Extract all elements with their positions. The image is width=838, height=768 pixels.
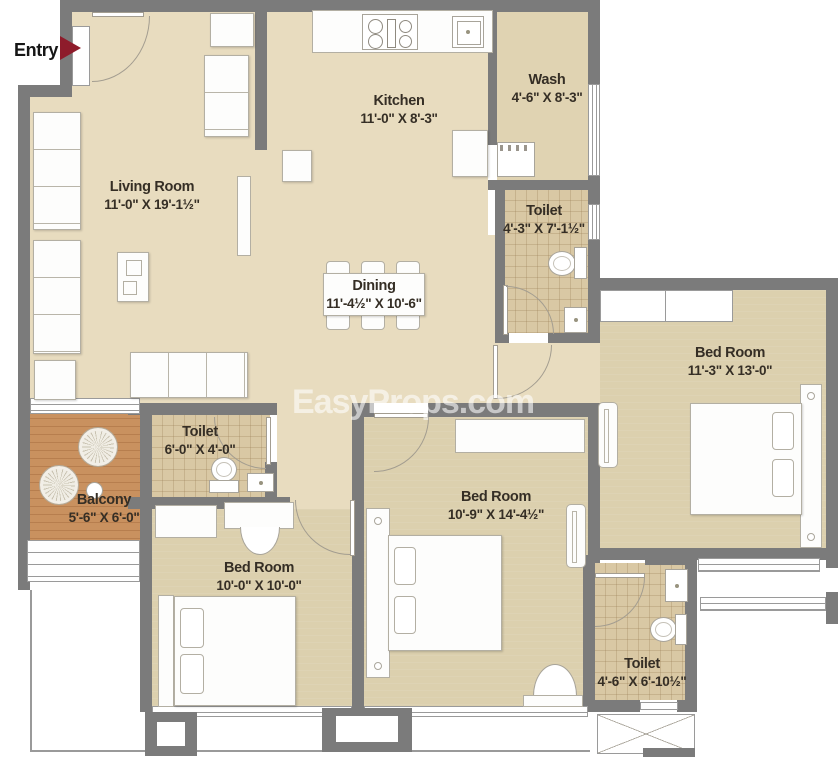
toilet-middle-door-leaf [266,417,271,465]
wall-bedroom-center-left [352,403,364,710]
room-dims: 11'-0" X 8'-3" [360,111,437,127]
terrace-right-rail [700,597,826,611]
wall-toilet-bottom-left [583,563,595,712]
sink-drain [466,30,470,34]
dressing-table [224,502,294,529]
floor-plan: Living Room 11'-0" X 19'-1½" Kitchen 11'… [0,0,838,768]
bedroom-left-door-leaf [350,500,355,556]
bed-headboard [800,384,822,548]
bedroom-right-bottom-window [698,558,820,572]
entry-arrow-icon [60,36,81,60]
burner [399,35,412,48]
room-label-toilet-top: Toilet 4'-3" X 7'-1½" [503,203,585,237]
pillow [394,596,416,634]
washbasin [665,569,688,602]
room-dims: 11'-3" X 13'-0" [688,363,773,379]
pillow [772,459,794,497]
room-label-bedroom-center: Bed Room 10'-9" X 14'-4½" [448,489,544,523]
wc-bowl [548,251,576,276]
living-balcony-window [30,398,140,414]
room-name: Bed Room [688,345,773,363]
room-label-bedroom-left: Bed Room 10'-0" X 10'-0" [216,560,301,594]
wc-bowl [650,617,677,642]
wall-bedroom-right-side [826,278,838,568]
room-name: Toilet [597,656,686,674]
terrace-column [145,712,197,756]
room-name: Wash [512,72,583,90]
wc-tank [209,480,239,493]
stove-divider [387,19,396,48]
toilet-bottom-louver [640,702,678,710]
washing-machine [497,142,535,177]
coffee-table [117,252,149,302]
shutter-line [604,409,609,463]
bedroom-right-door-shutter [598,402,618,468]
wall-left-outer [18,85,30,590]
coffee-table-detail [126,260,142,276]
wicker-chair [79,428,117,466]
column-core [336,716,398,742]
wall-right-upper [588,12,600,343]
pillow [772,412,794,450]
wardrobe [455,419,585,453]
toilet-top-window [588,204,600,240]
bed-headboard [158,595,174,707]
room-name: Dining [326,278,421,296]
room-dims: 11'-0" X 19'-1½" [104,197,199,213]
column-core [157,722,185,746]
washbasin [564,307,587,333]
entry-cabinet-tall [204,55,249,137]
room-dims: 11'-4½" X 10'-6" [326,296,421,312]
wall-toilet-top-bottom-b [548,333,600,343]
pillow [394,547,416,585]
room-dims: 5'-6" X 6'-0" [69,510,140,526]
wc-tank [675,614,687,645]
room-name: Bed Room [216,560,301,578]
kitchen-sink [452,16,484,48]
room-label-living: Living Room 11'-0" X 19'-1½" [104,179,199,213]
refrigerator [452,130,488,177]
sofa-left-lower [33,240,81,354]
shutter-line [572,511,577,563]
room-name: Balcony [69,492,140,510]
shelf [155,505,217,538]
dining-chair [361,314,385,330]
room-label-dining: Dining 11'-4½" X 10'-6" [326,278,421,312]
room-dims: 10'-0" X 10'-0" [216,578,301,594]
wall-bedroom-left-side [140,509,152,712]
basin-counter [523,695,583,707]
window-divider [665,291,666,321]
wall-kitchen-divider [255,0,267,150]
dining-chair [326,314,350,330]
side-table [34,360,76,400]
burner [368,19,383,34]
pillow [180,654,204,694]
room-name: Living Room [104,179,199,197]
pillow [180,608,204,648]
washer-panel [500,145,532,151]
wall-toilet-bottom-base-a [583,700,640,712]
headboard-knob [374,517,382,525]
window-shutter [566,504,586,568]
room-name: Toilet [165,424,236,442]
wc-tank [574,247,587,279]
entry-cabinet-small [210,13,254,47]
room-label-bedroom-right: Bed Room 11'-3" X 13'-0" [688,345,773,379]
terrace-line-left [30,590,32,750]
room-name: Bed Room [448,489,544,507]
room-dims: 4'-6" X 6'-10½" [597,674,686,690]
headboard-knob [807,533,815,541]
stove [362,14,418,50]
bedroom-right-top-window [600,290,733,322]
room-label-balcony: Balcony 5'-6" X 6'-0" [69,492,140,526]
dining-chair [396,314,420,330]
entry-label: Entry [14,40,58,61]
bed-headboard [366,508,390,678]
wall-bedroom-right-top [588,278,838,290]
room-label-toilet-middle: Toilet 6'-0" X 4'-0" [165,424,236,458]
room-dims: 10'-9" X 14'-4½" [448,507,544,523]
shaft-bottom-wall [643,748,695,757]
coffee-table-detail [123,281,137,295]
room-dims: 6'-0" X 4'-0" [165,442,236,458]
wall-toilet-bottom-base-b [677,700,697,712]
watermark: EasyProps.com [292,383,534,422]
burner [368,34,383,49]
room-dims: 4'-3" X 7'-1½" [503,221,585,237]
room-name: Kitchen [360,93,437,111]
room-label-kitchen: Kitchen 11'-0" X 8'-3" [360,93,437,127]
room-label-toilet-bottom: Toilet 4'-6" X 6'-10½" [597,656,686,690]
kitchen-cabinet [282,150,312,182]
room-dims: 4'-6" X 8'-3" [512,90,583,106]
burner [399,20,412,33]
wash-window [588,84,600,176]
headboard-knob [374,662,382,670]
wc-bowl [211,457,237,482]
terrace-line-bottom [30,750,590,752]
washbasin [247,473,274,492]
sofa-bottom [130,352,248,398]
sofa-left-upper [33,112,81,230]
headboard-knob [807,392,815,400]
wall-balcony-divider [140,403,152,509]
room-label-wash: Wash 4'-6" X 8'-3" [512,72,583,106]
wall-terrace-stub-right [826,592,838,624]
terrace-column [322,708,412,752]
tv-unit [237,176,251,256]
balcony-railing [27,540,140,582]
room-name: Toilet [503,203,585,221]
